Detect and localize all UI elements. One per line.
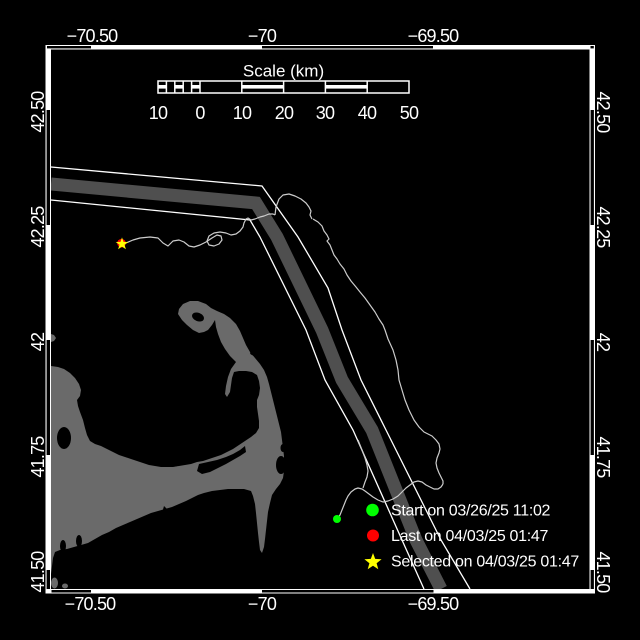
svg-text:−70: −70 [248,594,277,614]
svg-text:50: 50 [400,103,419,123]
svg-text:Last on 04/03/25 01:47: Last on 04/03/25 01:47 [391,528,548,545]
svg-text:10: 10 [233,103,252,123]
svg-text:−70: −70 [248,26,277,46]
svg-text:42.50: 42.50 [593,91,613,133]
svg-text:42.25: 42.25 [593,206,613,248]
svg-text:20: 20 [275,103,294,123]
svg-text:−70.50: −70.50 [67,26,119,46]
svg-text:Selected on 04/03/25 01:47: Selected on 04/03/25 01:47 [391,554,579,571]
svg-text:42.50: 42.50 [28,91,48,133]
svg-text:−70.50: −70.50 [65,594,117,614]
svg-text:0: 0 [195,103,205,123]
svg-text:42: 42 [593,333,613,352]
svg-text:10: 10 [149,103,168,123]
svg-text:−69.50: −69.50 [408,26,460,46]
svg-text:30: 30 [316,103,335,123]
svg-text:41.50: 41.50 [28,551,48,593]
svg-text:Scale (km): Scale (km) [243,62,324,81]
svg-text:−69.50: −69.50 [408,594,460,614]
svg-text:Start on 03/26/25 11:02: Start on 03/26/25 11:02 [391,503,551,520]
svg-text:42: 42 [28,332,48,351]
svg-text:40: 40 [358,103,377,123]
svg-text:41.75: 41.75 [593,436,613,478]
svg-text:41.75: 41.75 [28,436,48,478]
svg-text:42.25: 42.25 [28,206,48,248]
svg-text:41.50: 41.50 [593,551,613,593]
